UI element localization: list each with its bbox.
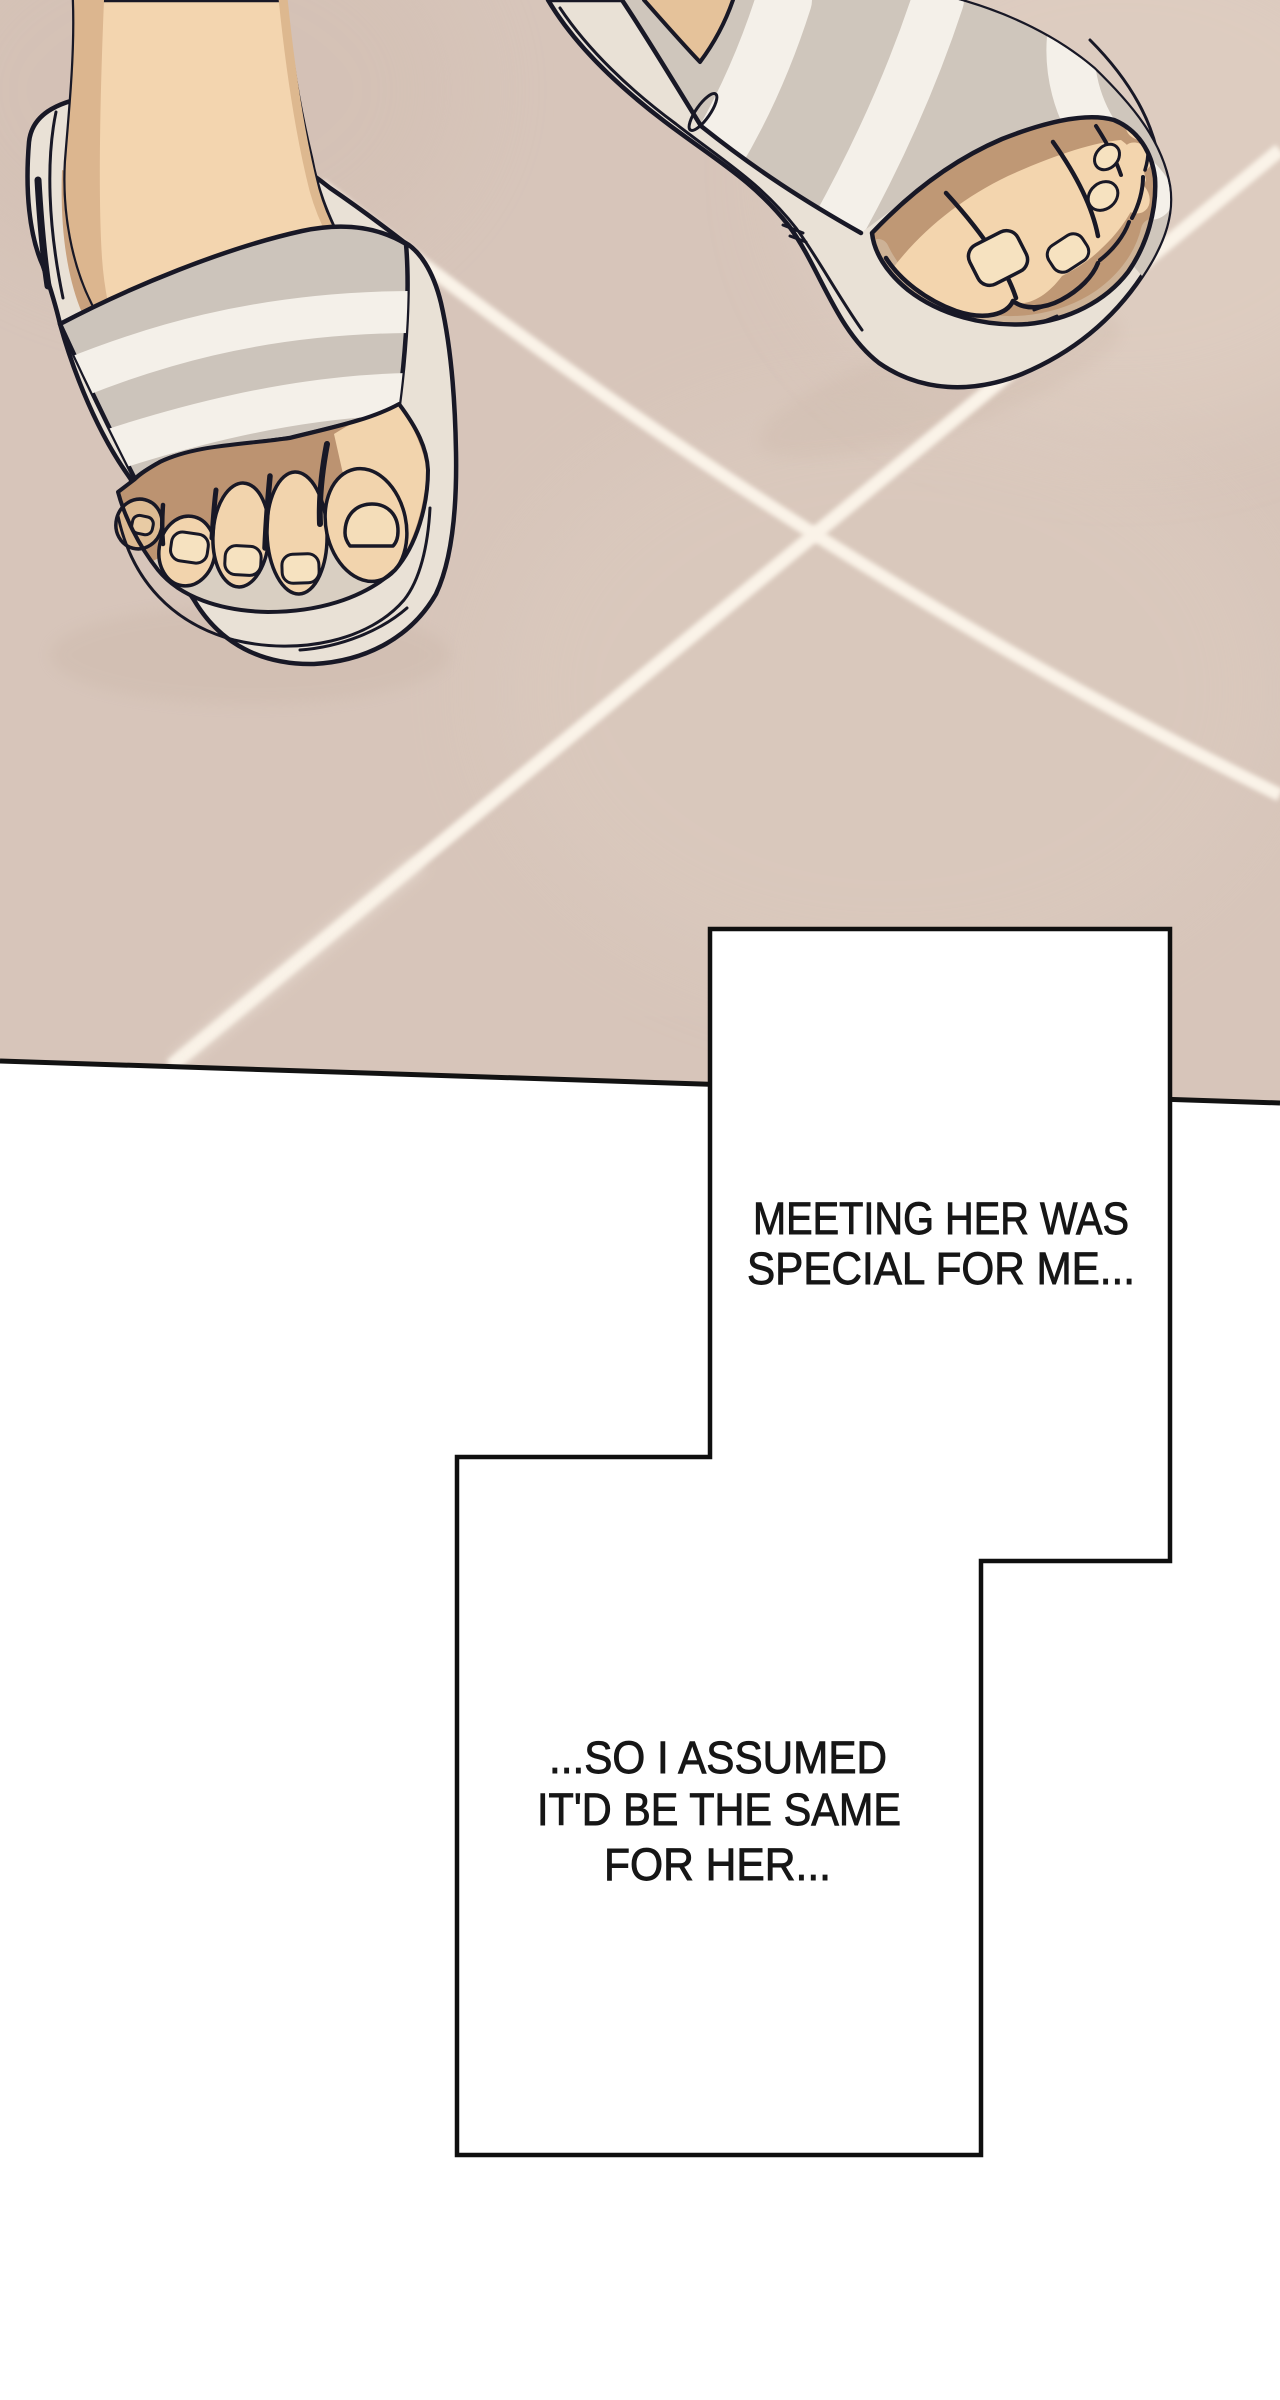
svg-text:MEETING HER WAS: MEETING HER WAS bbox=[753, 1193, 1129, 1244]
svg-text:SPECIAL FOR ME...: SPECIAL FOR ME... bbox=[747, 1243, 1135, 1294]
svg-text:IT'D BE THE SAME: IT'D BE THE SAME bbox=[537, 1784, 901, 1835]
svg-text:FOR HER...: FOR HER... bbox=[604, 1839, 831, 1890]
svg-text:...SO I ASSUMED: ...SO I ASSUMED bbox=[549, 1732, 887, 1783]
